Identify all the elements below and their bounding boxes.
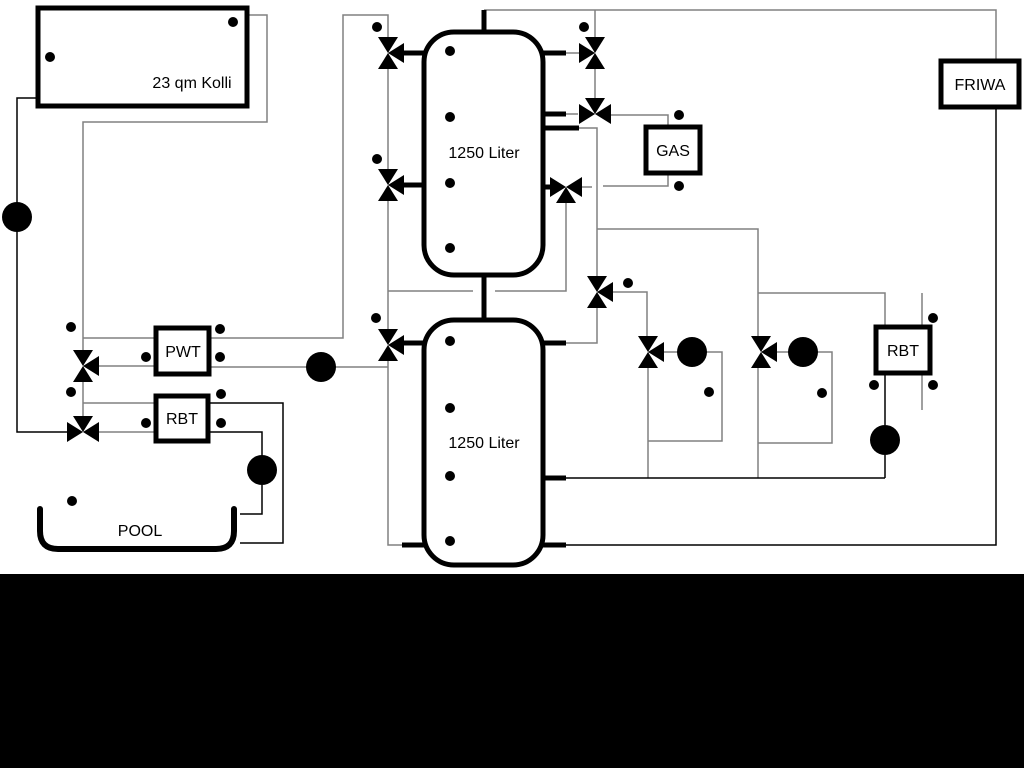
circuit2-pump-icon [788,337,818,367]
sensor-heating-rail-icon [623,278,633,296]
gas-label: GAS [656,143,690,160]
pipe-riser-seg3 [388,360,403,545]
pipe-rbt2-feed [758,293,885,327]
sensor-pwt-right-top-icon [215,324,225,342]
three-way-valve-tank1-mid [378,169,404,201]
pipe-heating-rail [597,229,758,336]
pipe-right-riser [578,128,597,276]
three-way-valve-circuit2 [751,336,777,368]
three-way-valve-circuit1 [638,336,664,368]
pool-label: POOL [118,523,163,540]
three-way-valve-tank2-top [378,329,404,361]
sensor-pwt-left-icon [66,322,84,332]
three-way-valve-heating-rail [587,276,613,308]
tank-upper-label: 1250 Liter [448,145,520,162]
sensor-riser3-icon [371,313,389,323]
sensor-pwt-mid-icon [141,352,151,370]
three-way-valve-rail-tank1 [579,37,605,69]
friwa-label: FRIWA [955,77,1006,94]
schematic-canvas: 23 qm Kolli 1250 Liter 1250 Liter GAS FR… [0,0,1024,768]
three-way-valve-solar-pwt [73,350,99,382]
pwt-label: PWT [165,344,201,361]
sensor-rbt1-left-icon [66,387,84,397]
tank-lower-label: 1250 Liter [448,435,520,452]
pipe-circuit1-feed [611,292,647,336]
three-way-valve-gas-flow [579,98,611,124]
pipe-collector-supply [17,98,68,432]
bottom-black-bar [0,574,1024,768]
rbt-dhw-label: RBT [887,343,919,360]
solar-pump-icon [2,202,32,232]
pwt-charge-pump-icon [306,352,336,382]
circuit1-pump-icon [677,337,707,367]
collector-label: 23 qm Kolli [152,75,231,92]
sensor-rbt1-right-mid-icon [216,418,226,436]
pipe-valve-tank2 [565,308,597,343]
pipe-pool-return-a [208,432,262,456]
three-way-valve-gas-return [550,177,582,203]
pipe-pool-return-b [240,485,262,514]
sensor-rbt1-right-top-icon [216,389,226,407]
sensor-pool-icon [67,496,77,514]
sensor-circuit1-icon [704,387,722,397]
rbt-solar-label: RBT [166,411,198,428]
pool-pump-icon [247,455,277,485]
sensor-rbt1-mid-icon [141,418,151,436]
three-way-valve-solar-rbt [67,416,99,442]
rbt-dhw-pump-icon [870,425,900,455]
three-way-valve-tank1-top [378,37,404,69]
hydraulic-schematic: 23 qm Kolli 1250 Liter 1250 Liter GAS FR… [0,0,1024,768]
